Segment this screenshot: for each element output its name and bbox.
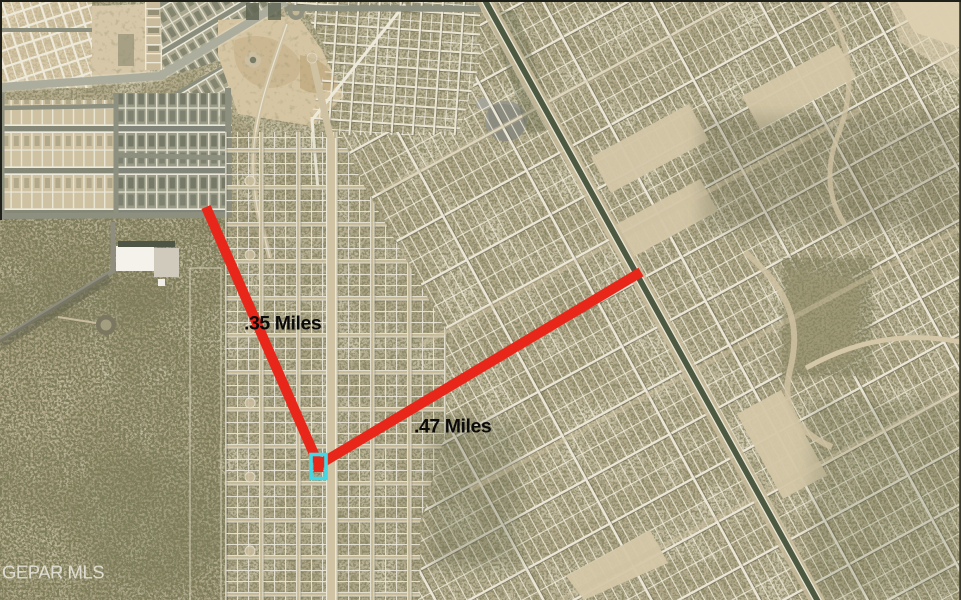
svg-text:.35 Miles: .35 Miles — [244, 313, 322, 335]
svg-text:.47 Miles: .47 Miles — [414, 416, 492, 438]
svg-text:GEPAR MLS: GEPAR MLS — [2, 562, 104, 583]
